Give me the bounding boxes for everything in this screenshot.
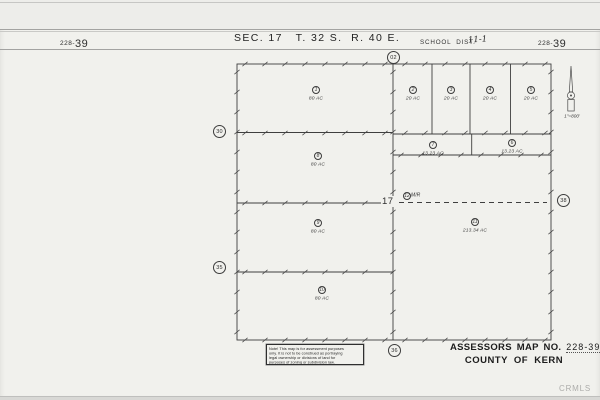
note-line: purposes of zoning or subdivision law. xyxy=(269,360,364,364)
parcel-number: 4 xyxy=(486,86,494,94)
parcel-acreage: 80 AC xyxy=(297,162,339,167)
adjacent-map-ref-right: 38 xyxy=(557,194,570,207)
parcel-acreage: 13.23 AC xyxy=(412,151,454,156)
adjacent-map-ref-left-upper: 30 xyxy=(213,125,226,138)
parcel-acreage: 80 AC xyxy=(297,229,339,234)
scale-note: 1"=800' xyxy=(559,114,585,119)
parcel-acreage: 13.23 AC xyxy=(491,149,533,154)
parcel-acreage: 20 AC xyxy=(510,96,552,101)
assessor-map-page: 228-39 SEC. 17 T. 32 S. R. 40 E. SCHOOL … xyxy=(0,0,600,400)
assessment-note-box: Note! This map is for assessment purpose… xyxy=(266,344,364,365)
parcel-number: 3 xyxy=(447,86,455,94)
parcel-acreage: 80 AC xyxy=(295,96,337,101)
adjacent-map-ref-bottom: 36 xyxy=(388,344,401,357)
assessors-map-number: 228-39 xyxy=(566,342,600,353)
parcel-label: 713.23 AC xyxy=(403,133,463,158)
parcel-label: 11213.34 AC xyxy=(445,210,505,235)
north-arrow-icon xyxy=(567,66,574,111)
title-block: ASSESSORS MAP NO. 228-39 COUNTY OF KERN xyxy=(450,342,578,366)
parcel-number: 11 xyxy=(471,218,479,226)
parcel-number: 2 xyxy=(409,86,417,94)
parcel-number: 12 xyxy=(403,192,411,200)
parcel-acreage: M/R xyxy=(411,193,420,198)
parcel-number: 8 xyxy=(314,152,322,160)
assessors-map-label: ASSESSORS MAP NO. xyxy=(450,342,561,353)
crmls-watermark: CRMLS xyxy=(559,384,591,393)
parcel-label: 980 AC xyxy=(288,211,348,236)
assessors-map-no-line: ASSESSORS MAP NO. 228-39 xyxy=(450,342,578,353)
adjacent-map-ref-top: 02 xyxy=(387,51,400,64)
parcel-label: 520 AC xyxy=(501,78,561,103)
parcel-number: 10 xyxy=(318,286,326,294)
parcel-label: 880 AC xyxy=(288,144,348,169)
county-label: COUNTY OF KERN xyxy=(450,355,578,366)
parcel-label: 12M/R xyxy=(403,184,424,202)
parcel-linework xyxy=(0,0,600,400)
parcel-label: 1080 AC xyxy=(292,278,352,303)
parcel-label: 180 AC xyxy=(286,78,346,103)
section-number: 17 xyxy=(381,196,395,207)
parcel-number: 5 xyxy=(527,86,535,94)
parcel-label: 613.23 AC xyxy=(482,131,542,156)
parcel-number: 1 xyxy=(312,86,320,94)
parcel-number: 6 xyxy=(508,139,516,147)
adjacent-map-ref-left-lower: 35 xyxy=(213,261,226,274)
parcel-acreage: 80 AC xyxy=(301,296,343,301)
parcel-acreage: 213.34 AC xyxy=(454,228,496,233)
parcel-number: 9 xyxy=(314,219,322,227)
parcel-number: 7 xyxy=(429,141,437,149)
